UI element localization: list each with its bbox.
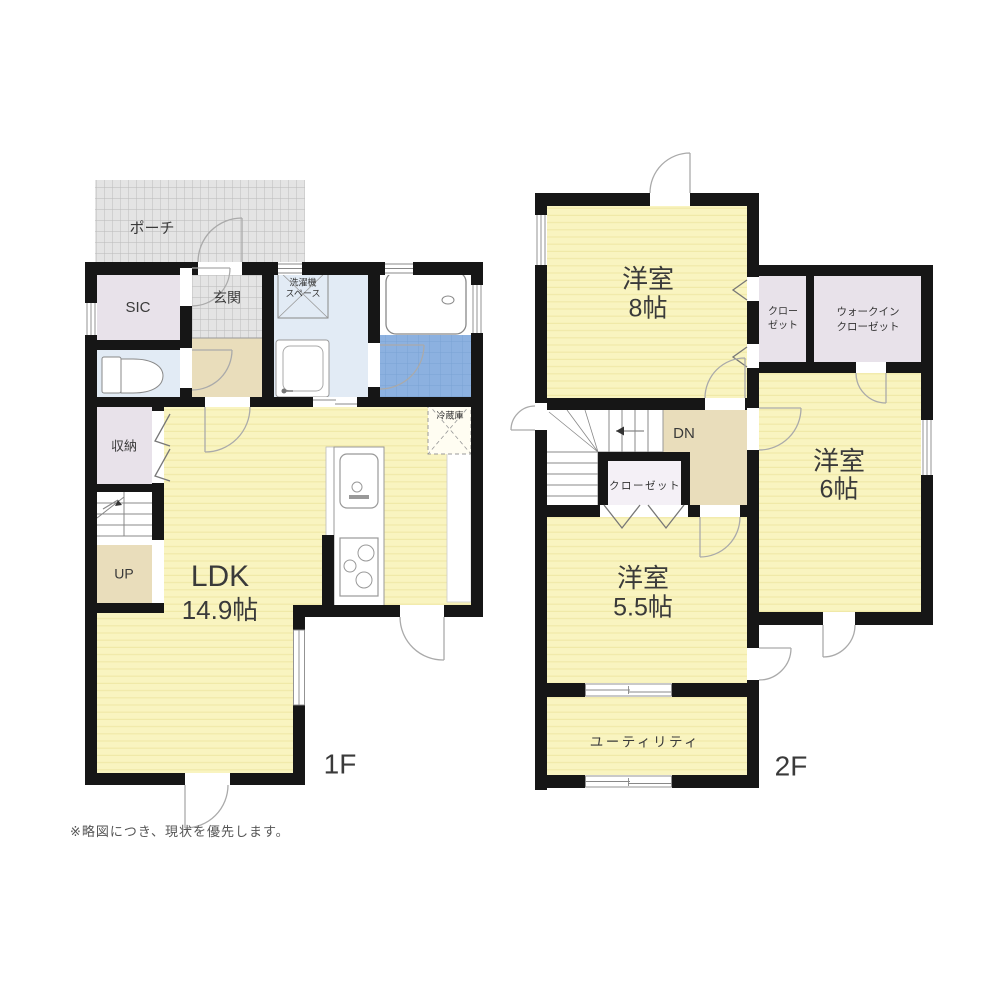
closet-right-label-2: ゼット — [768, 320, 798, 332]
room55-size-label: 5.5帖 — [613, 594, 673, 622]
kitchen-stove — [340, 538, 378, 596]
ldk-label: LDK — [191, 560, 249, 593]
floorplan-canvas: ポーチ SIC 玄関 洗濯機 スペース 収納 UP LDK 14.9帖 冷蔵庫 … — [0, 0, 1000, 1000]
dn-label: DN — [673, 425, 695, 442]
porch-label: ポーチ — [129, 220, 174, 237]
kitchen-sink — [340, 454, 378, 508]
ldk-south-door — [185, 785, 228, 828]
stairwell-side-door — [511, 406, 535, 430]
laundry-label-2: スペース — [286, 288, 321, 298]
ldk-terrace-door — [400, 617, 444, 660]
room8-label: 洋室 — [622, 264, 674, 294]
floor1-label: 1F — [324, 748, 357, 779]
sic-label: SIC — [125, 299, 150, 316]
room8-size-label: 8帖 — [629, 295, 668, 323]
closet-mid-box — [598, 452, 690, 505]
closet-right-label-1: クロー — [768, 306, 798, 318]
fridge-label: 冷蔵庫 — [436, 409, 463, 420]
floor2-plan — [511, 153, 933, 790]
room-bath-tile — [380, 335, 471, 397]
wic-label-2: クローゼット — [837, 321, 900, 333]
disclaimer-note: ※略図につき、現状を優先します。 — [70, 824, 290, 839]
utility-label: ユーティリティ — [590, 735, 700, 750]
laundry-label-1: 洗濯機 — [289, 276, 316, 287]
room-wic — [814, 276, 921, 362]
room6-label: 洋室 — [813, 446, 865, 476]
storage-label: 収納 — [111, 438, 137, 453]
room6-south-door — [823, 625, 855, 657]
up-label: UP — [114, 566, 133, 582]
ldk-size-label: 14.9帖 — [182, 595, 259, 625]
closet-mid-label: クローゼット — [609, 480, 681, 492]
floorplan-svg: ポーチ SIC 玄関 洗濯機 スペース 収納 UP LDK 14.9帖 冷蔵庫 … — [0, 0, 1000, 1000]
room55-label: 洋室 — [617, 563, 669, 593]
bathtub-fixture — [386, 272, 466, 334]
floor1-plan — [85, 180, 483, 828]
floor2-label: 2F — [775, 750, 808, 781]
room55-side-door — [759, 648, 791, 680]
room-closet-right — [759, 276, 806, 362]
room8-balcony-door — [650, 153, 690, 193]
genkan-label: 玄関 — [213, 290, 241, 306]
room6-size-label: 6帖 — [820, 476, 859, 504]
washbasin-fixture — [276, 340, 329, 397]
wic-label-1: ウォークイン — [837, 306, 900, 318]
